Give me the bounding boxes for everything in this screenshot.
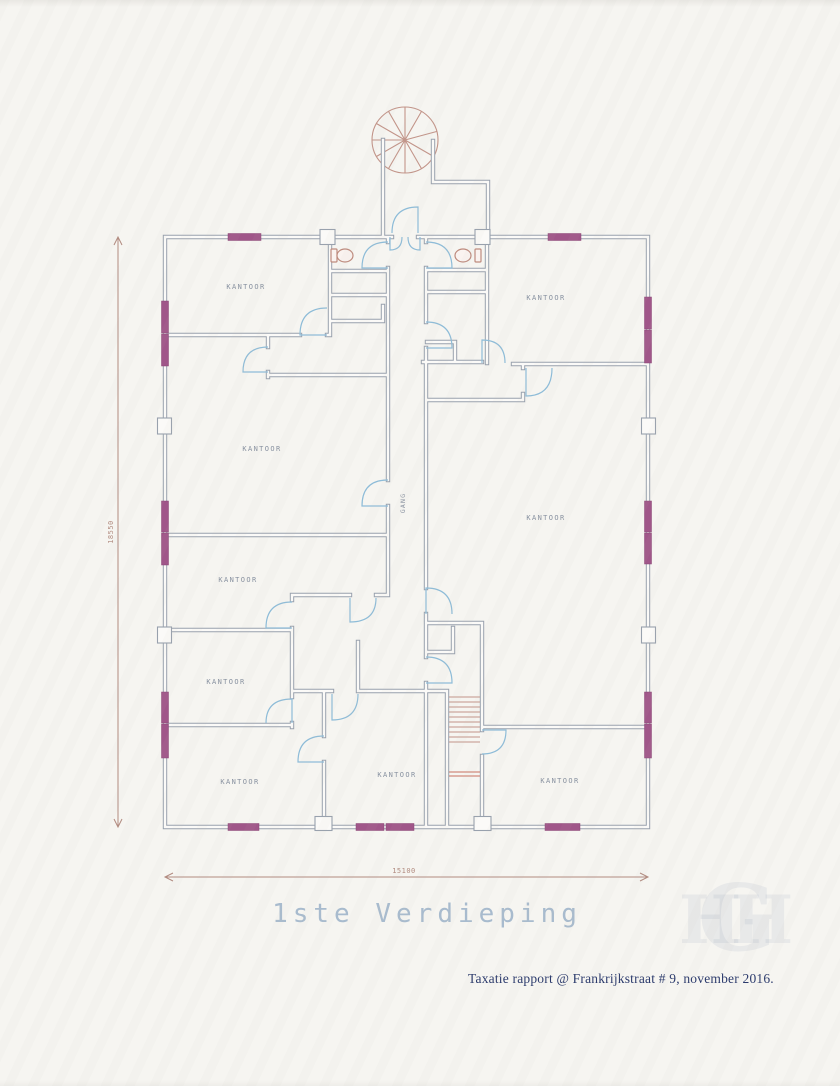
toilet-right-icon	[455, 249, 481, 262]
room-label: KANTOOR	[526, 294, 565, 302]
room-label: KANTOOR	[206, 678, 245, 686]
room-label: KANTOOR	[226, 283, 265, 291]
drawing-title: 1ste Verdieping	[272, 899, 582, 929]
room-label: KANTOOR	[540, 777, 579, 785]
wall-piers	[158, 230, 656, 831]
room-label: KANTOOR	[242, 445, 281, 453]
dimension-height-label: 18550	[107, 520, 115, 544]
windows	[162, 234, 652, 831]
walls	[165, 140, 648, 827]
watermark-letter-right: H	[731, 881, 793, 959]
report-caption: Taxatie rapport @ Frankrijkstraat # 9, n…	[468, 971, 774, 986]
watermark-monogram-icon: H G H	[679, 864, 793, 972]
room-label: KANTOOR	[220, 778, 259, 786]
hallway-label: GANG	[399, 493, 407, 513]
room-label: KANTOOR	[218, 576, 257, 584]
floor-plan-canvas: H G H	[0, 0, 840, 1086]
door-swings	[243, 207, 552, 762]
toilet-left-icon	[331, 249, 353, 262]
scanned-floorplan-page: H G H	[0, 0, 840, 1086]
dimension-width-label: 15100	[392, 867, 416, 875]
room-label: KANTOOR	[377, 771, 416, 779]
room-label: KANTOOR	[526, 514, 565, 522]
straight-staircase	[449, 697, 480, 776]
